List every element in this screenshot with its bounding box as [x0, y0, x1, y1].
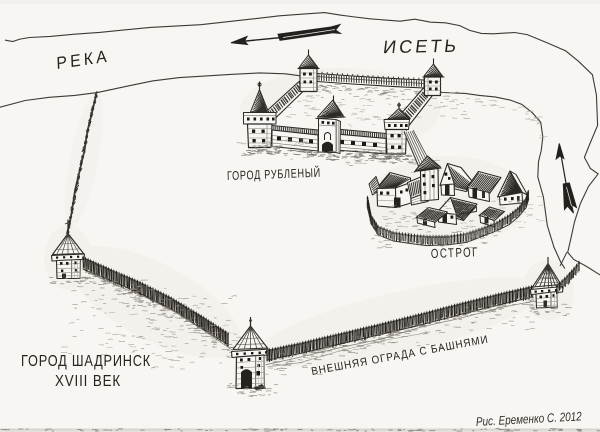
svg-text:XVIII ВЕК: XVIII ВЕК — [55, 373, 121, 390]
svg-text:ИСЕТЬ: ИСЕТЬ — [382, 36, 460, 57]
svg-text:ГОРОД ШАДРИНСК: ГОРОД ШАДРИНСК — [21, 353, 151, 370]
svg-text:ОСТРОГ: ОСТРОГ — [431, 244, 479, 261]
